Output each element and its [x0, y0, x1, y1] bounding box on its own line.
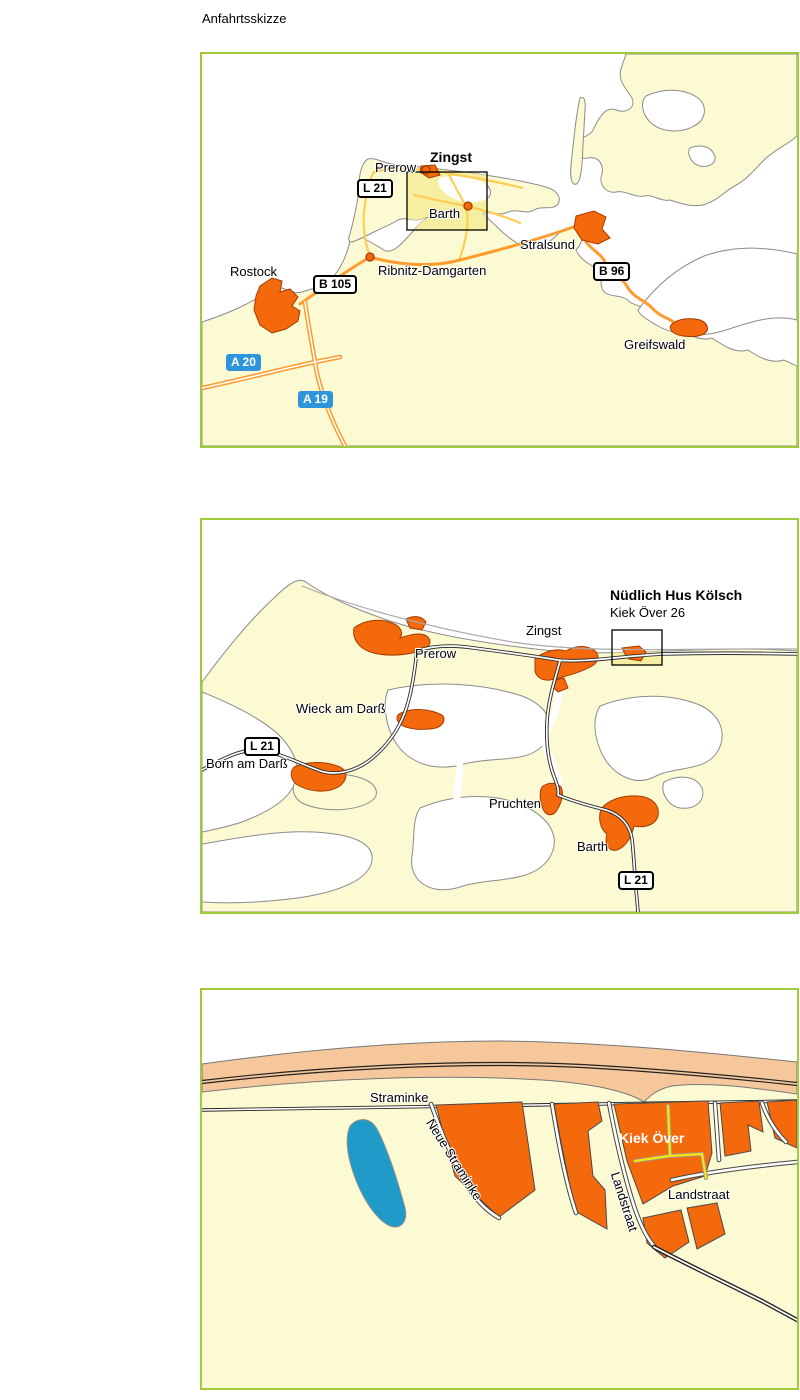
- road-sign-l21-south: L 21: [618, 871, 654, 890]
- road-sign-b105: B 105: [313, 275, 357, 294]
- label-born-am-darss: Born am Darß: [206, 756, 288, 771]
- label-stralsund: Stralsund: [520, 237, 575, 252]
- label-prerow: Prerow: [375, 160, 416, 175]
- label-barth: Barth: [429, 206, 460, 221]
- label-barth: Barth: [577, 839, 608, 854]
- label-venue-name: Nüdlich Hus Kölsch: [610, 587, 742, 603]
- map-street-detail: Straminke Neue Straminke Kiek Över Lands…: [200, 988, 799, 1390]
- road-sign-b96: B 96: [593, 262, 630, 281]
- label-zingst: Zingst: [526, 623, 561, 638]
- label-straminke: Straminke: [370, 1090, 429, 1105]
- motorway-sign-a19: A 19: [298, 391, 333, 408]
- label-kiek-over: Kiek Över: [619, 1130, 684, 1146]
- map-region: Nüdlich Hus Kölsch Kiek Över 26 Zingst P…: [200, 518, 799, 914]
- greifswald-area: [670, 319, 707, 337]
- road-sign-l21-west: L 21: [244, 737, 280, 756]
- label-wieck-am-darss: Wieck am Darß: [296, 701, 386, 716]
- map-region-canvas: [202, 520, 797, 912]
- label-ribnitz-damgarten: Ribnitz-Damgarten: [378, 263, 486, 278]
- bay-shape: [638, 248, 797, 335]
- label-pruchten: Pruchten: [489, 796, 541, 811]
- page-title: Anfahrtsskizze: [202, 11, 287, 26]
- page: Anfahrtsskizze: [0, 0, 800, 1400]
- label-landstraat: Landstraat: [668, 1187, 729, 1202]
- label-venue-street: Kiek Över 26: [610, 605, 685, 620]
- map-overview-canvas: [202, 54, 797, 446]
- motorway-sign-a20: A 20: [226, 354, 261, 371]
- hiddensee-shape: [571, 98, 586, 185]
- map-overview: Rostock Prerow Zingst Barth Ribnitz-Damg…: [200, 52, 799, 448]
- label-rostock: Rostock: [230, 264, 277, 279]
- label-zingst: Zingst: [430, 149, 472, 165]
- ribnitz-dot: [366, 253, 374, 261]
- prerow-dot: [422, 166, 430, 174]
- road-sign-l21: L 21: [357, 179, 393, 198]
- label-prerow: Prerow: [415, 646, 456, 661]
- label-greifswald: Greifswald: [624, 337, 685, 352]
- barth-dot: [464, 202, 472, 210]
